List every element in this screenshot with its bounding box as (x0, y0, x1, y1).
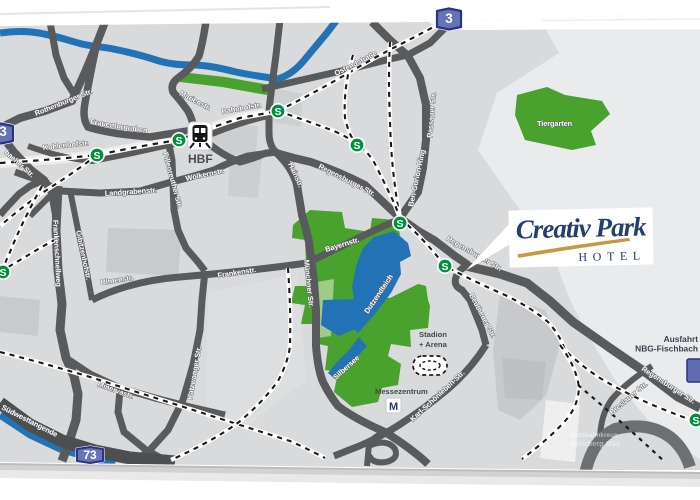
svg-text:3: 3 (0, 124, 7, 139)
svg-text:S: S (396, 218, 403, 230)
svg-text:Tiergarten: Tiergarten (537, 119, 573, 128)
svg-text:S: S (175, 135, 182, 147)
svg-text:+ Arena: + Arena (419, 340, 448, 349)
svg-text:S: S (441, 261, 448, 273)
svg-text:S: S (692, 415, 699, 427)
svg-text:Messezentrum: Messezentrum (375, 387, 428, 396)
svg-text:S: S (93, 150, 100, 162)
svg-text:Autobahnkreuz: Autobahnkreuz (570, 432, 618, 439)
svg-text:Nürnberg Süd: Nürnberg Süd (570, 439, 620, 448)
svg-text:S: S (0, 267, 7, 279)
svg-text:S: S (353, 140, 360, 152)
svg-text:3: 3 (445, 11, 453, 26)
svg-text:S: S (274, 106, 281, 118)
svg-text:73: 73 (83, 448, 97, 462)
svg-text:Ausfahrt: Ausfahrt (664, 334, 699, 344)
svg-text:Stadion: Stadion (419, 330, 447, 339)
svg-text:HBF: HBF (188, 152, 213, 166)
svg-text:NBG-Fischbach: NBG-Fischbach (635, 344, 698, 354)
svg-text:M: M (389, 401, 398, 413)
svg-text:HOTEL: HOTEL (578, 249, 646, 265)
